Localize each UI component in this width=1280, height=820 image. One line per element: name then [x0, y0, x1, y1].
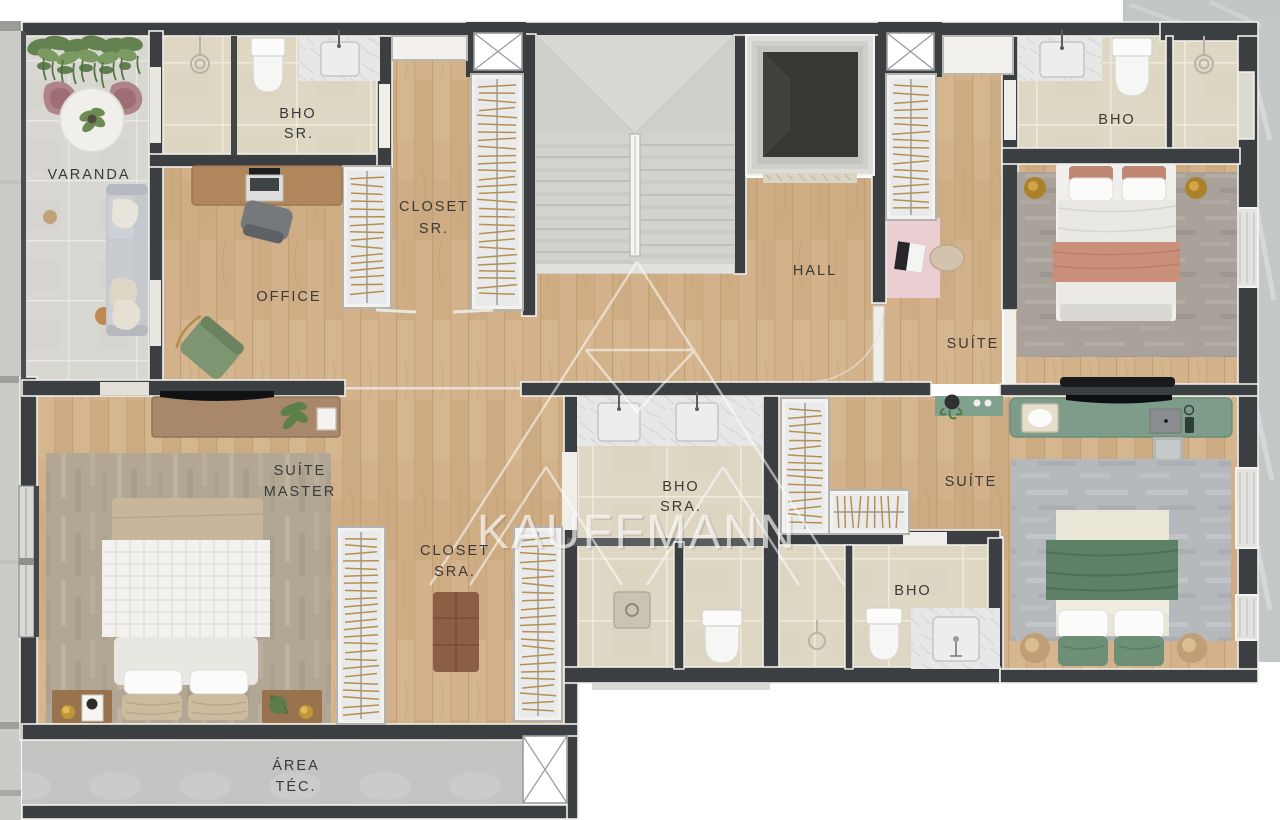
svg-text:CLOSET: CLOSET	[399, 199, 469, 215]
svg-text:VARANDA: VARANDA	[47, 167, 130, 183]
svg-text:CLOSET: CLOSET	[420, 543, 490, 559]
svg-text:BHO: BHO	[894, 583, 931, 599]
svg-text:SUÍTE: SUÍTE	[274, 462, 327, 479]
svg-text:BHO: BHO	[1098, 112, 1135, 128]
svg-text:OFFICE: OFFICE	[256, 289, 321, 305]
svg-text:SUÍTE: SUÍTE	[947, 335, 1000, 352]
svg-text:SUÍTE: SUÍTE	[945, 473, 998, 490]
svg-text:HALL: HALL	[793, 263, 837, 279]
svg-text:MASTER: MASTER	[264, 484, 336, 500]
svg-text:BHO: BHO	[662, 479, 699, 495]
svg-text:KAUFFMANN: KAUFFMANN	[477, 506, 797, 559]
svg-text:SR.: SR.	[419, 221, 449, 237]
svg-text:ÁREA: ÁREA	[272, 757, 320, 774]
svg-text:SRA.: SRA.	[434, 564, 476, 580]
svg-text:SR.: SR.	[284, 126, 314, 142]
svg-text:BHO: BHO	[279, 106, 316, 122]
svg-text:TÉC.: TÉC.	[275, 778, 316, 795]
svg-text:SRA.: SRA.	[660, 499, 702, 515]
